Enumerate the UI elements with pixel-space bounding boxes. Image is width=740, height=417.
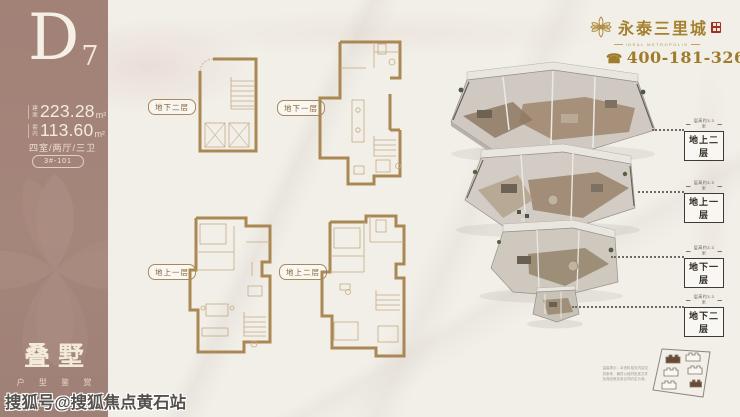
unit-digit: 7 (81, 41, 98, 72)
floorplan-basement1-drawing (312, 38, 406, 190)
unit-number-badge: 3#-101 (32, 155, 84, 168)
sidebar-panel: D7 · · · · · · · · · · 建面 223.28 m² 套内 1… (0, 0, 108, 417)
brand-header: 永泰三里城 IDEAL METROPOLIS (588, 14, 728, 47)
room-configuration: 四室/两厅/三卫 (29, 141, 96, 154)
area-value: 113.60 (40, 120, 93, 141)
unit-tagline-dots: · · · · · · · · · · (30, 84, 100, 96)
area-unit: m² (94, 129, 105, 139)
level-label: 地上一层 (684, 193, 724, 223)
brand-name: 永泰三里城 (618, 15, 708, 39)
product-type-name: 叠墅 (0, 336, 108, 373)
level-caption: 层高约3.3米 (686, 295, 722, 306)
area-row-inner: 套内 113.60 m² (28, 120, 105, 141)
unit-code: D7 (28, 6, 99, 72)
disclaimer-text: 温馨提示：本资料相关内容仅供参考，最终以政府批准文件及商品房买卖合同约定为准。 (602, 366, 648, 383)
brand-subtitle: IDEAL METROPOLIS (614, 42, 700, 47)
brand-seal-icon (711, 22, 721, 33)
brochure-page: D7 · · · · · · · · · · 建面 223.28 m² 套内 1… (0, 0, 740, 417)
unit-letter: D (28, 1, 79, 75)
level-label: 地上二层 (684, 131, 724, 161)
leader-line-ground1 (638, 191, 684, 193)
floorplan-ground1-drawing (186, 212, 280, 358)
leader-line-basement1 (611, 256, 684, 258)
level-tag-ground2: 层高约3.3米 地上二层 (684, 118, 724, 161)
level-label: 地下二层 (684, 307, 724, 337)
level-tag-basement1: 层高约3.3米 地下一层 (684, 245, 724, 288)
site-plan-minimap (650, 345, 714, 401)
watermark-text: 搜狐号@搜狐焦点黄石站 (5, 389, 186, 413)
level-caption: 层高约3.3米 (686, 119, 722, 130)
plan-label-basement2: 地下二层 (148, 99, 196, 115)
area-prefix: 建面 (28, 105, 38, 119)
level-tag-ground1: 层高约3.3米 地上一层 (684, 180, 724, 223)
floorplan-basement2-drawing (195, 55, 261, 155)
area-prefix: 套内 (28, 124, 38, 138)
iso-render-stack (433, 60, 673, 332)
level-caption: 层高约3.3米 (686, 181, 722, 192)
area-value: 223.28 (40, 101, 95, 122)
area-row-gross: 建面 223.28 m² (28, 101, 106, 122)
level-tag-basement2: 层高约3.3米 地下二层 (684, 294, 724, 337)
leader-line-basement2 (572, 306, 684, 308)
product-type-block: 叠墅 户 型 鉴 赏 · · · · (0, 336, 108, 395)
area-unit: m² (96, 110, 107, 120)
floorplan-ground2-drawing (318, 212, 408, 362)
level-label: 地下一层 (684, 258, 724, 288)
brand-flower-icon (588, 14, 614, 40)
product-type-caption: 户 型 鉴 赏 (0, 377, 108, 388)
level-caption: 层高约3.3米 (686, 246, 722, 257)
leader-line-ground2 (652, 129, 684, 131)
